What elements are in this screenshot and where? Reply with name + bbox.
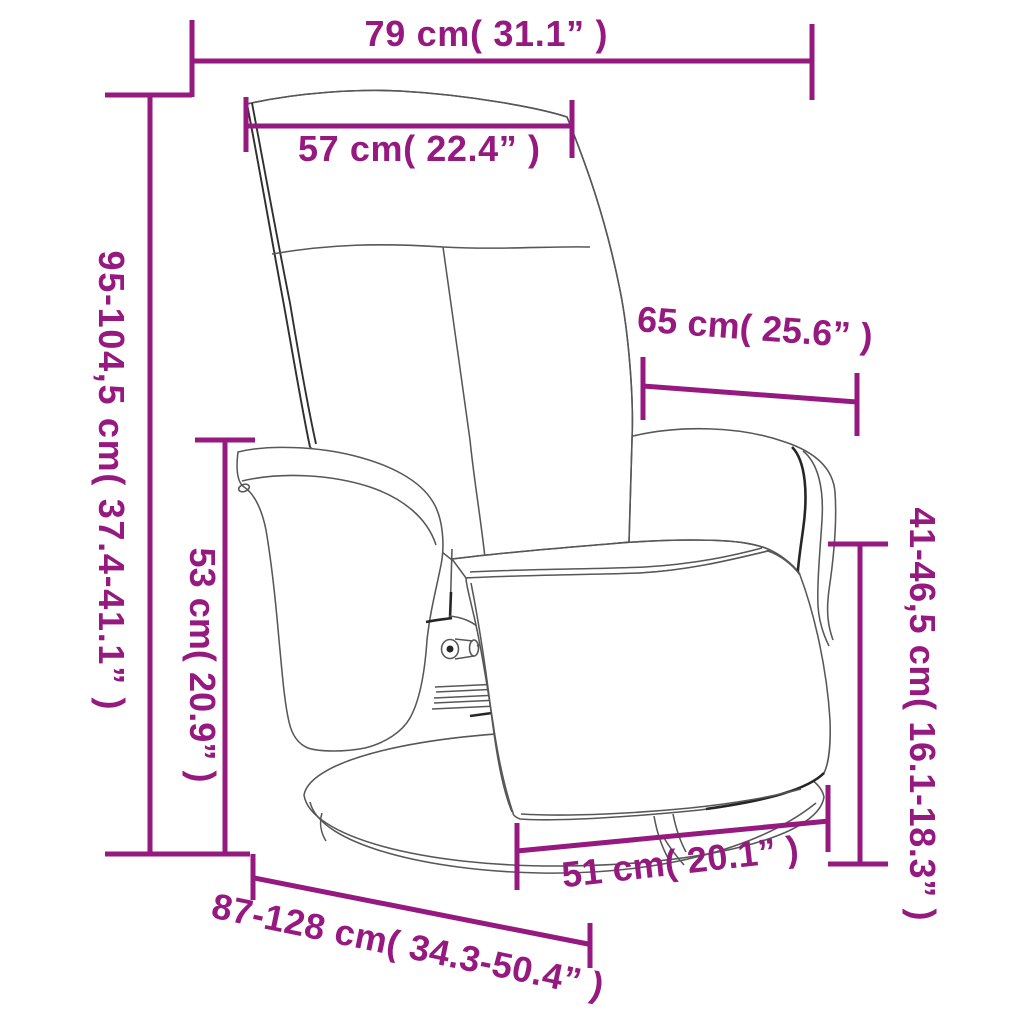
svg-text:41-46,5 cm( 16.1-18.3” ): 41-46,5 cm( 16.1-18.3” ) xyxy=(902,508,943,921)
svg-text:57 cm( 22.4” ): 57 cm( 22.4” ) xyxy=(298,128,540,169)
svg-text:95-104,5 cm( 37.4-41.1” ): 95-104,5 cm( 37.4-41.1” ) xyxy=(91,251,132,710)
svg-text:53 cm( 20.9” ): 53 cm( 20.9” ) xyxy=(182,548,223,783)
svg-text:79 cm( 31.1” ): 79 cm( 31.1” ) xyxy=(365,13,608,54)
